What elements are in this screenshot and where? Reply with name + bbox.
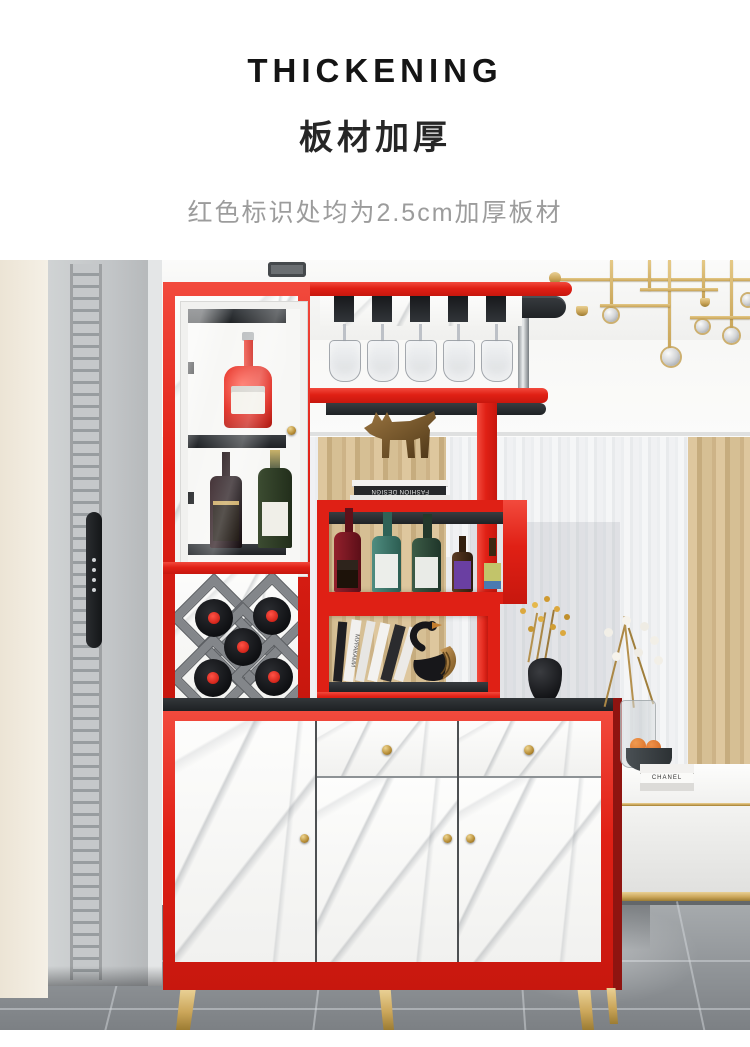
- floor-seam: [0, 1008, 750, 1010]
- left-wall: [0, 260, 48, 998]
- chandelier-rod: [556, 278, 750, 281]
- glass-reflection: [188, 309, 286, 555]
- right-drawer-knob: [524, 745, 534, 755]
- display-door-knob: [287, 426, 296, 435]
- chandelier-rod: [610, 260, 613, 308]
- chandelier-rod: [702, 260, 705, 298]
- bottle-green-neck: [423, 514, 432, 540]
- chandelier-shade: [576, 306, 588, 316]
- glass-rack-slot: [448, 296, 468, 322]
- glass-rack-slot: [372, 296, 392, 322]
- chandelier-rod: [600, 304, 670, 307]
- left-door-knob: [300, 834, 309, 843]
- wine-glass: [443, 340, 475, 382]
- glass-rack-slot: [486, 296, 506, 322]
- bench-book: [640, 764, 694, 773]
- rack-bottle-cap: [208, 612, 220, 624]
- product-photo: FASHION DESIGN МУРАКАМИ: [0, 260, 750, 1030]
- dog-book-spine-text: FASHION DESIGN: [371, 488, 429, 494]
- chandelier-bulb: [696, 320, 709, 333]
- glass-rack-slot: [410, 296, 430, 322]
- bottle-maroon-label: [337, 560, 358, 588]
- display-cabinet-door: [181, 302, 307, 576]
- glass-rack-slot: [334, 296, 354, 322]
- bottle-teal-label: [375, 554, 398, 588]
- base-left-door: [175, 721, 315, 962]
- bottle-box-top-strip: [329, 512, 515, 524]
- chandelier-bulb: [662, 348, 680, 366]
- right-door-knob: [466, 834, 475, 843]
- bench-book: [640, 783, 694, 791]
- mid-door-knob: [443, 834, 452, 843]
- diamond-rack: [175, 574, 298, 700]
- dog-book-spine: FASHION DESIGN: [354, 486, 446, 495]
- rack-bottle-cap: [237, 641, 249, 653]
- base-top-strip: [163, 698, 622, 711]
- mid-drawer-knob: [382, 745, 392, 755]
- bench-book-chanel: CHANEL: [641, 773, 693, 783]
- door-edge-highlight: [148, 260, 162, 986]
- page-subtitle: 红色标识处均为2.5cm加厚板材: [0, 193, 750, 229]
- ceiling-vent: [268, 262, 306, 277]
- chandelier-bulb: [604, 308, 618, 322]
- bottle-green-label: [415, 557, 438, 588]
- bottle-teal-neck: [383, 512, 392, 538]
- base-mid-door: [317, 778, 457, 962]
- glass-rack: [320, 296, 522, 326]
- header: THICKENING 板材加厚 红色标识处均为2.5cm加厚板材: [0, 0, 750, 260]
- rack-bottle-cap: [207, 672, 219, 684]
- wine-glass: [481, 340, 513, 382]
- wine-glass: [367, 340, 399, 382]
- cotton-dots: [604, 628, 613, 637]
- door-keypad: [92, 558, 96, 562]
- swan-figurine: [398, 618, 466, 684]
- chandelier-rod: [640, 288, 718, 291]
- tier2-red-shelf: [310, 388, 548, 403]
- dog-figurine: [362, 408, 448, 482]
- wine-glass: [329, 340, 361, 382]
- beer-bottle-label-purple: [454, 561, 471, 589]
- wine-glass: [405, 340, 437, 382]
- counter-pole: [518, 318, 529, 390]
- base-right-door: [459, 778, 601, 962]
- bottle-box-right: [503, 500, 527, 604]
- base-doors: [175, 721, 601, 962]
- chandelier-rod: [648, 260, 651, 290]
- door-handle: [86, 512, 102, 648]
- beer-bottle-label-yellow: [484, 563, 501, 589]
- rack-bottle-cap: [268, 671, 280, 683]
- page-title: THICKENING: [0, 52, 750, 90]
- entry-door: [48, 260, 162, 986]
- chandelier-rod: [730, 260, 733, 330]
- page-title-chinese: 板材加厚: [0, 110, 750, 159]
- bench-book-spine-text: CHANEL: [652, 775, 682, 781]
- chandelier-rod: [690, 316, 750, 319]
- rack-bottle-cap: [266, 610, 278, 622]
- chandelier-bulb: [742, 294, 750, 306]
- chandelier-bulb: [724, 328, 739, 343]
- yellow-flower-dots: [520, 608, 526, 614]
- left-column-divider: [163, 562, 310, 574]
- door-bottom-shadow: [48, 966, 162, 986]
